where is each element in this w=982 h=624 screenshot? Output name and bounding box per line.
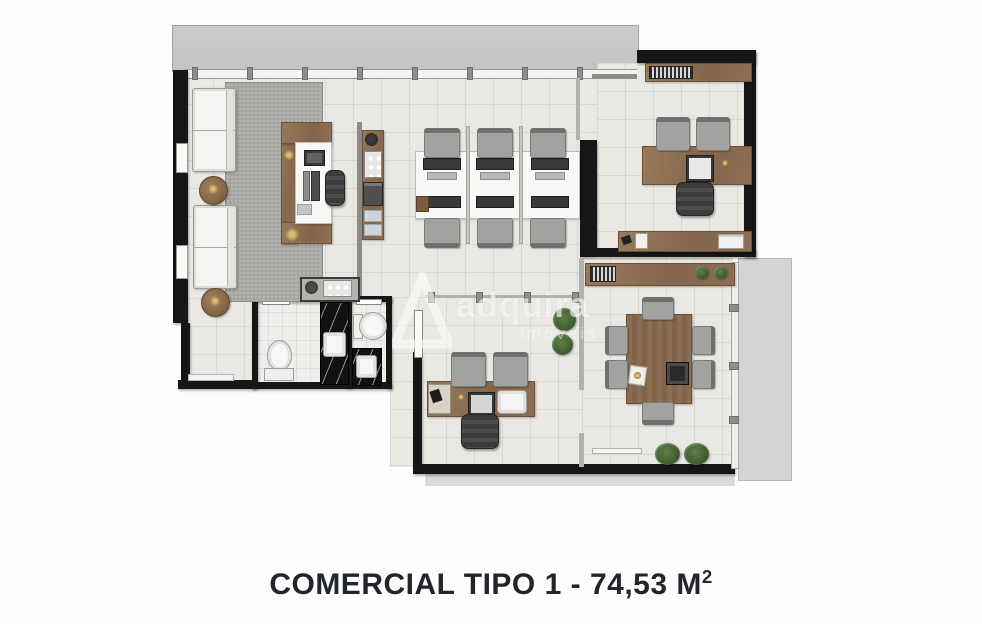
keyboard xyxy=(480,172,510,180)
bathroom-left-wall xyxy=(252,296,258,388)
meeting-room-left-wall-upper xyxy=(579,258,584,390)
guest-chair xyxy=(451,352,486,387)
table-decor xyxy=(208,184,218,194)
monitor xyxy=(468,392,495,416)
counter-sink xyxy=(305,281,318,294)
office-monitor xyxy=(686,155,714,182)
desk-decor xyxy=(458,394,464,400)
monitor xyxy=(423,158,461,170)
floor-plan-image: adquira imóveis COMERCIAL TIPO 1 - 74,53… xyxy=(0,0,982,624)
glass-post xyxy=(524,292,531,303)
keyboard xyxy=(427,172,457,180)
table-decor xyxy=(210,296,220,306)
cup-tray xyxy=(364,151,382,178)
monitor xyxy=(531,196,569,208)
task-chair xyxy=(424,218,460,248)
sideboard-rack xyxy=(590,266,616,282)
printer xyxy=(718,234,744,249)
desk-decor xyxy=(284,150,294,160)
laptop xyxy=(666,362,689,385)
paper-tray xyxy=(364,210,382,222)
reception-desk-top xyxy=(281,122,332,144)
meeting-room-left-wall-lower xyxy=(579,433,584,467)
desk-divider-screen xyxy=(519,126,523,244)
bottom-office-glass-wall xyxy=(425,295,578,298)
window-mullion xyxy=(302,67,308,80)
reception-keyboard xyxy=(303,171,310,201)
credenza-rack xyxy=(649,66,693,79)
guest-chair xyxy=(696,117,730,151)
bottom-office-door xyxy=(414,310,423,358)
glass-post xyxy=(476,292,483,303)
cup-tray xyxy=(323,280,352,297)
file-box xyxy=(635,233,648,249)
top-balcony-slab xyxy=(172,25,639,72)
right-terrace-slab xyxy=(738,258,792,481)
monitor xyxy=(476,158,514,170)
meeting-table xyxy=(626,314,692,404)
plant xyxy=(655,443,680,465)
executive-chair xyxy=(676,182,714,216)
desk-tray xyxy=(297,204,312,215)
glass-post xyxy=(572,292,579,303)
corridor-baseboard xyxy=(188,374,234,381)
bathroom1-toilet-tank xyxy=(264,368,294,381)
keyboard xyxy=(535,172,565,180)
plant xyxy=(553,308,576,331)
guest-chair xyxy=(493,352,528,387)
table-decor xyxy=(634,372,641,379)
monitor xyxy=(531,158,569,170)
task-chair xyxy=(477,128,513,158)
left-wall xyxy=(173,70,188,323)
bathroom-right-wall xyxy=(386,296,392,388)
meeting-chair xyxy=(692,360,715,389)
plan-caption: COMERCIAL TIPO 1 - 74,53 M2 xyxy=(0,566,982,602)
bottom-terrace-edge xyxy=(425,474,735,486)
window-post xyxy=(729,304,739,312)
plant xyxy=(695,266,708,279)
bathroom2-toilet-bowl xyxy=(359,312,387,340)
guest-chair xyxy=(656,117,690,151)
window-post xyxy=(729,362,739,370)
private-office-left-wall xyxy=(580,140,597,252)
office-entry-wall-stub xyxy=(592,74,637,79)
window-mullion xyxy=(192,67,198,80)
desk-divider-screen xyxy=(466,126,470,244)
bottom-wall xyxy=(413,464,735,474)
left-wall-window xyxy=(176,143,188,173)
task-chair xyxy=(424,128,460,158)
desk-decor xyxy=(722,160,728,166)
open-office-glass-partition xyxy=(576,78,580,140)
bathroom1-toilet-bowl xyxy=(267,340,292,371)
bottom-left-wall xyxy=(178,380,255,389)
task-chair xyxy=(530,218,566,248)
monitor xyxy=(476,196,514,208)
waiting-sofa xyxy=(193,205,237,289)
bottom-office-left-wall xyxy=(413,352,422,470)
window-mullion xyxy=(467,67,473,80)
plant xyxy=(684,443,709,465)
bathroom1-sink xyxy=(323,332,346,357)
waiting-sofa xyxy=(192,88,236,172)
plant xyxy=(552,334,573,355)
desk-tray xyxy=(497,390,527,414)
private-office-top-wall xyxy=(637,50,756,63)
window-mullion xyxy=(357,67,363,80)
meeting-chair xyxy=(642,297,674,320)
caption-text: COMERCIAL TIPO 1 - 74,53 M xyxy=(269,568,702,601)
window-mullion xyxy=(247,67,253,80)
reception-chair xyxy=(325,170,345,206)
bathroom2-sink xyxy=(356,355,377,378)
printer xyxy=(363,182,383,206)
meeting-chair xyxy=(605,360,628,389)
glass-post xyxy=(428,292,435,303)
window-post xyxy=(729,416,739,424)
meeting-chair xyxy=(692,326,715,355)
caption-superscript: 2 xyxy=(702,566,713,587)
floor-track xyxy=(592,448,642,454)
plant xyxy=(714,266,727,279)
reception-monitor xyxy=(304,150,325,166)
meeting-chair xyxy=(642,402,674,425)
task-chair xyxy=(477,218,513,248)
folder xyxy=(416,196,429,212)
desk-decor-star xyxy=(285,228,299,241)
window-mullion xyxy=(522,67,528,80)
meeting-chair xyxy=(605,326,628,355)
window-mullion xyxy=(412,67,418,80)
paper-tray xyxy=(364,224,382,236)
task-chair xyxy=(530,128,566,158)
executive-chair xyxy=(461,414,499,449)
reception-cpu xyxy=(311,171,320,201)
coffee-machine xyxy=(365,133,378,146)
left-wall-window xyxy=(176,245,188,279)
